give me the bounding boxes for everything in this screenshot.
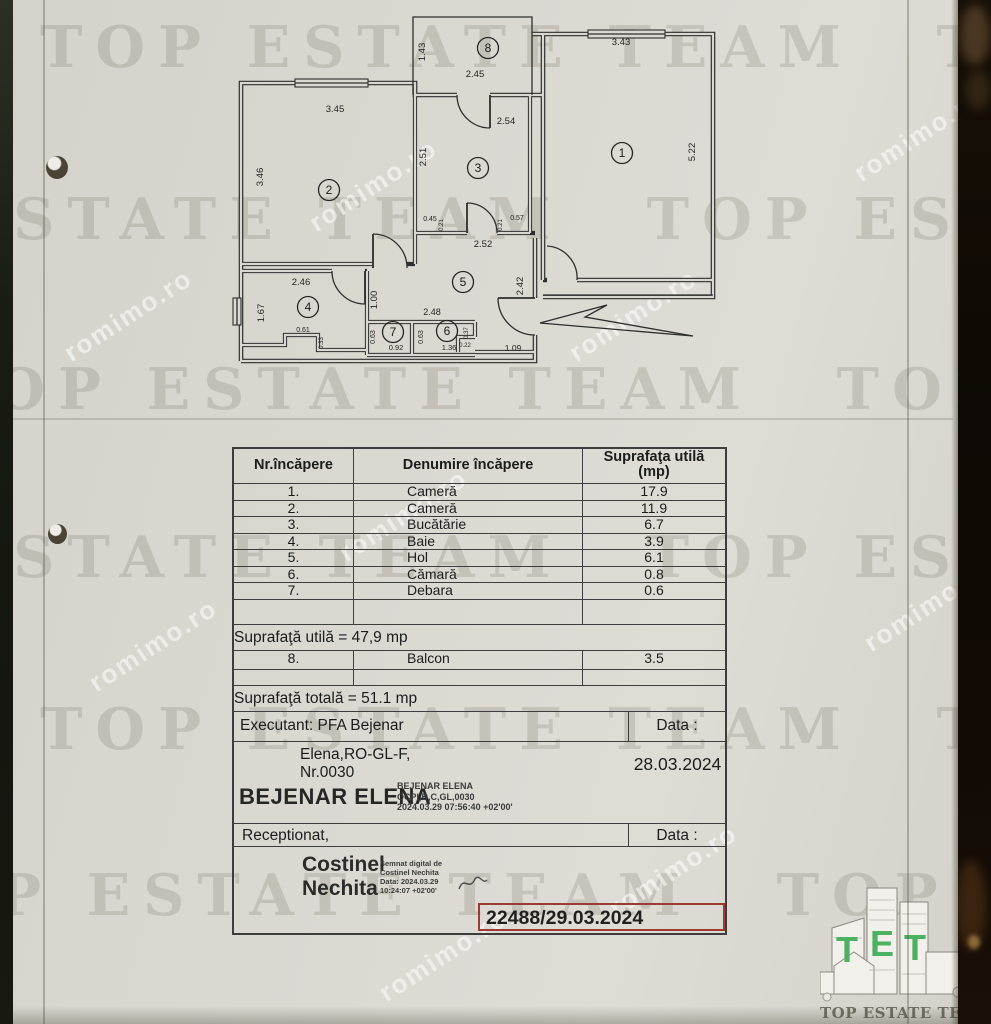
balcony-name: Balcon — [354, 651, 583, 669]
dimension-label: 2.51 — [418, 148, 429, 167]
room-number-label: 8 — [485, 41, 492, 55]
executant-label: Executant: PFA Bejenar — [234, 712, 628, 741]
row-name: Cameră — [354, 501, 583, 517]
scanned-document-page: TOP ESTATE TEAM TOP ESTATE TEAMTOP ESTAT… — [0, 0, 991, 1024]
dimension-label: 0.45 — [423, 216, 437, 223]
room-number-label: 4 — [305, 300, 312, 314]
row-area: 6.1 — [583, 550, 725, 566]
date-label-2: Data : — [628, 824, 725, 846]
table-row: 5.Hol6.1 — [234, 550, 725, 567]
header-name: Denumire încăpere — [354, 449, 583, 483]
total-row: Suprafaţă totală = 51.1 mp — [234, 686, 725, 713]
row-area: 11.9 — [583, 501, 725, 517]
table-row: 4.Baie3.9 — [234, 534, 725, 551]
signer1-certificate-details: BEJENAR ELENA OCPI,B,C,GL,0030 2024.03.2… — [397, 781, 513, 813]
paper-fold-line — [907, 0, 909, 1024]
dimension-label: 2.48 — [423, 307, 441, 317]
dimension-label: 0.21 — [498, 219, 504, 231]
punch-hole — [46, 156, 68, 179]
receiver-signature-block: Costinel Nechita Semnat digital de Costi… — [234, 847, 725, 933]
room-number-label: 2 — [326, 183, 333, 197]
dimension-label: 1.67 — [256, 304, 267, 323]
row-area: 0.6 — [583, 583, 725, 599]
dimension-label: 2.42 — [515, 277, 526, 296]
dimension-label: 1.43 — [417, 43, 428, 62]
signer2-name: Costinel Nechita — [302, 853, 385, 901]
row-nr: 1. — [234, 484, 354, 500]
row-name: Cameră — [354, 484, 583, 500]
background-behind-paper — [958, 0, 991, 1024]
registration-stamp: 22488/29.03.2024 — [478, 903, 725, 931]
dimension-label: 0.37 — [464, 327, 470, 339]
date-value-1: 28.03.2024 — [629, 754, 726, 775]
dimension-label: 1.09 — [505, 343, 522, 353]
dimension-label: 0.21 — [439, 219, 445, 231]
paper-bottom-shadow — [0, 1006, 958, 1024]
svg-text:E: E — [870, 923, 894, 964]
executant-row: Executant: PFA Bejenar Data : — [234, 712, 725, 742]
svg-text:T: T — [836, 929, 858, 970]
table-row: 6.Cămară0.8 — [234, 567, 725, 584]
table-row: 3.Bucătărie6.7 — [234, 517, 725, 534]
row-nr: 7. — [234, 583, 354, 599]
table-row: 1.Cameră17.9 — [234, 484, 725, 501]
binder-edge — [0, 0, 13, 1024]
watermark-diagonal-text: romimo.ro — [58, 263, 198, 369]
header-nr: Nr.încăpere — [234, 449, 354, 483]
subtotal-row: Suprafaţă utilă = 47,9 mp — [234, 625, 725, 651]
entrance-arrow — [540, 305, 693, 336]
logo-buildings-icon: TET — [820, 880, 965, 1004]
table-body: 1.Cameră17.92.Cameră11.93.Bucătărie6.74.… — [234, 484, 725, 600]
table-row: 2.Cameră11.9 — [234, 501, 725, 518]
paper-fold-line — [43, 0, 45, 1024]
dimension-label: 0.61 — [296, 327, 310, 334]
row-nr: 6. — [234, 567, 354, 583]
area-table: Nr.încăpere Denumire încăpere Suprafaţa … — [232, 447, 727, 935]
dimension-label: 0.57 — [510, 215, 524, 222]
dimension-label: 0.22 — [459, 343, 471, 349]
dimension-label: 0.92 — [389, 343, 404, 352]
row-name: Debara — [354, 583, 583, 599]
row-name: Hol — [354, 550, 583, 566]
dimension-label: 2.45 — [466, 69, 485, 80]
watermark-diagonal-text: romimo.ro — [83, 593, 223, 699]
row-nr: 4. — [234, 534, 354, 550]
dimension-label: 0.63 — [370, 330, 377, 344]
dimension-label: 1.36 — [442, 343, 457, 352]
balcony-row: 8. Balcon 3.5 — [234, 651, 725, 670]
paper-crease — [13, 418, 953, 420]
row-area: 6.7 — [583, 517, 725, 533]
paper-edge-shadow — [951, 0, 958, 1024]
dimension-label: 5.22 — [687, 143, 698, 162]
dimension-label: 2.54 — [497, 116, 516, 127]
table-header-row: Nr.încăpere Denumire încăpere Suprafaţa … — [234, 449, 725, 484]
balcony-nr: 8. — [234, 651, 354, 669]
table-row: 7.Debara0.6 — [234, 583, 725, 600]
handwritten-signature — [456, 873, 490, 895]
dimension-label: 3.46 — [255, 168, 266, 187]
dimension-label: 1.00 — [369, 291, 380, 310]
dimension-label: 3.45 — [326, 104, 345, 115]
row-nr: 5. — [234, 550, 354, 566]
row-name: Cămară — [354, 567, 583, 583]
header-area: Suprafaţa utilă (mp) — [583, 449, 725, 483]
header-area-line1: Suprafaţa utilă — [583, 450, 725, 465]
room-number-label: 3 — [475, 161, 482, 175]
received-row: Receptionat, Data : — [234, 824, 725, 847]
spacer-row — [234, 670, 725, 686]
row-name: Baie — [354, 534, 583, 550]
room-number-label: 1 — [619, 146, 626, 160]
dimension-label: 2.46 — [292, 277, 311, 288]
executant-line2: Elena,RO-GL-F, — [300, 746, 410, 764]
row-area: 0.8 — [583, 567, 725, 583]
room-number-label: 7 — [390, 325, 397, 339]
spacer-row — [234, 600, 725, 625]
room-number-label: 5 — [460, 275, 467, 289]
room-number-label: 6 — [444, 324, 451, 338]
row-nr: 2. — [234, 501, 354, 517]
dimension-label: 0.33 — [319, 337, 325, 349]
dimension-label: 2.52 — [474, 239, 493, 250]
dimension-label: 0.63 — [418, 330, 425, 344]
executant-signature-block: Elena,RO-GL-F, Nr.0030 BEJENAR ELENA BEJ… — [234, 742, 725, 824]
punch-hole — [48, 524, 67, 544]
dimension-label: 3.43 — [612, 37, 631, 48]
header-area-line2: (mp) — [583, 465, 725, 480]
row-area: 17.9 — [583, 484, 725, 500]
balcony-area: 3.5 — [583, 651, 725, 669]
date-label-1: Data : — [628, 712, 725, 741]
received-label: Receptionat, — [234, 824, 628, 846]
row-name: Bucătărie — [354, 517, 583, 533]
top-estate-team-logo: TET TOP ESTATE TEAM — [820, 880, 965, 1022]
signer2-certificate-details: Semnat digital de Costinel Nechita Data:… — [380, 859, 442, 895]
row-area: 3.9 — [583, 534, 725, 550]
row-nr: 3. — [234, 517, 354, 533]
executant-line3: Nr.0030 — [300, 764, 354, 782]
floor-plan: 123456781.432.453.435.223.453.462.542.51… — [225, 5, 765, 385]
